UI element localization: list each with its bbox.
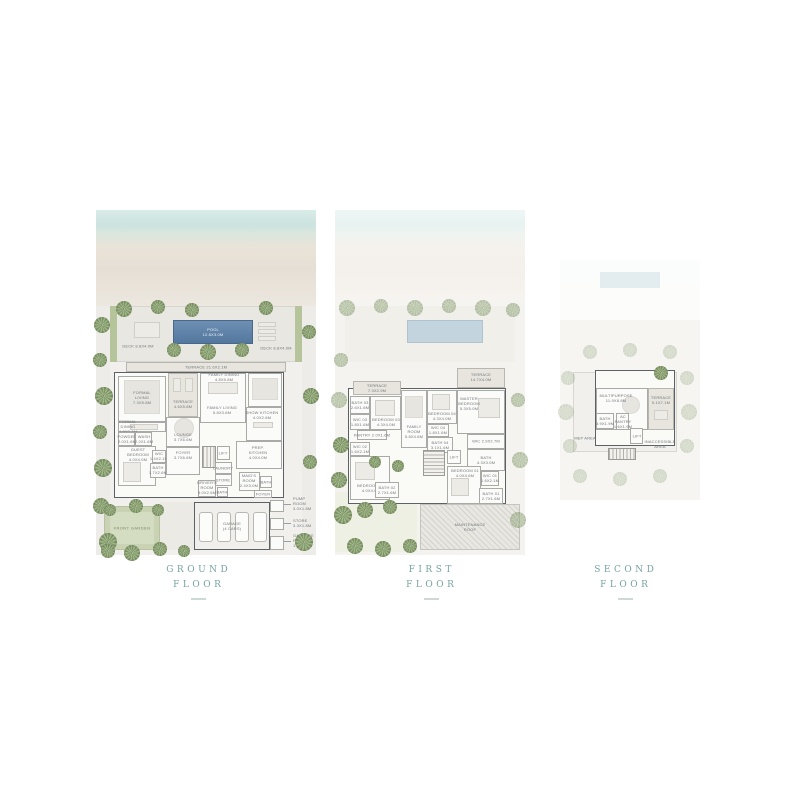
palm-tree-icon — [680, 371, 694, 385]
room-label-terrace-right: TERRACE 5.1X7.1M — [651, 395, 671, 405]
palm-tree-icon — [573, 469, 587, 483]
staircase — [608, 448, 636, 460]
room-label-maids: MAID'S ROOM 2.4X3.0M — [240, 473, 258, 489]
palm-tree-icon — [129, 499, 143, 513]
room-label-wic-master: WIC 2.9X2.7M — [472, 438, 500, 443]
room-label-terrace-master: TERRACE 14.7X4.0M — [471, 372, 492, 382]
palm-tree-icon — [331, 472, 347, 488]
second-floor-plan: TERRACE 14.8X4.0M TERRACE 5.1X7.1M MULTI… — [560, 260, 700, 500]
bed-icon — [451, 478, 469, 496]
palm-tree-icon — [374, 299, 388, 313]
room-label-bedroom-01: BEDROOM 01 4.0X4.6M — [451, 468, 479, 478]
palm-tree-icon — [151, 300, 165, 314]
room-label-deck-left: DECK 8.8X4.0M — [122, 343, 153, 348]
palm-tree-icon — [295, 533, 313, 551]
fade-overlay — [335, 210, 525, 306]
palm-tree-icon — [680, 439, 694, 453]
room-label-powder: POWDER 2.0X1.6M — [118, 434, 137, 444]
second-floor-title: SECOND FLOOR — [569, 563, 679, 600]
title-line: SECOND — [573, 563, 680, 578]
room-store-ext — [270, 518, 284, 530]
palm-tree-icon — [357, 502, 373, 518]
room-label-store: STORE — [216, 477, 230, 482]
palm-tree-icon — [185, 303, 199, 317]
palm-tree-icon — [331, 392, 347, 408]
rug — [252, 378, 278, 400]
palm-tree-icon — [442, 299, 456, 313]
room-label-bedroom-04: BEDROOM 04 4.3X4.0M — [428, 411, 456, 421]
room-label-family-dining: FAMILY DINING 4.8X5.8M — [209, 372, 240, 382]
room-label-wic-01: WIC 01 1.6X2.1M — [481, 473, 499, 483]
palm-tree-icon — [510, 512, 526, 528]
palm-tree-icon — [506, 303, 520, 317]
palm-tree-icon — [613, 472, 627, 486]
palm-tree-icon — [101, 544, 115, 558]
title-line: FIRST — [379, 563, 486, 578]
palm-tree-icon — [383, 500, 397, 514]
room-label-deck-right: DECK 8.8X4.0M — [260, 345, 291, 350]
room-label-entry: FOYER — [256, 491, 271, 496]
palm-tree-icon — [94, 317, 110, 333]
leader-line — [284, 523, 291, 524]
room-label-multipurpose: MULTIPURPOSE 11.9X8.8M — [599, 393, 632, 403]
beach-photo-faded — [335, 210, 525, 306]
room-label-bath-master: BATH 4.3X3.0M — [477, 455, 495, 465]
room-label-lift-second: LIFT — [633, 433, 642, 438]
callout-pump-room: PUMP ROOM 3.0X1.8M — [293, 496, 316, 512]
room-label-inaccessible: INACCESSIBLE AREA — [645, 439, 676, 449]
bed-icon — [375, 400, 395, 416]
beach-photo-pale — [560, 260, 700, 320]
planter — [173, 378, 181, 392]
palm-tree-icon — [333, 437, 349, 453]
room-label-drivers: DRIVER'S ROOM 3.0X2.6M — [197, 480, 217, 496]
room-label-terrace-inner: TERRACE 4.6X5.8M — [173, 399, 193, 409]
room-label-mep-area: MEP AREA — [574, 435, 596, 440]
palm-tree-icon — [653, 469, 667, 483]
palm-tree-icon — [116, 301, 132, 317]
room-label-bath-driver: BATH — [217, 489, 228, 494]
room-label-bath-03: BATH 03 2.6X1.6M — [351, 400, 369, 410]
palm-tree-icon — [475, 300, 491, 316]
sun-lounger — [258, 322, 276, 327]
palm-tree-icon — [152, 504, 164, 516]
palm-tree-icon — [681, 404, 697, 420]
swimming-pool-faded — [407, 320, 483, 343]
room-label-terrace-main: TERRACE 21.6X2.1M — [185, 364, 227, 369]
room-label-show-kitchen: SHOW KITCHEN 4.0X2.6M — [246, 410, 279, 420]
title-line: GROUND — [146, 563, 253, 578]
sun-lounger — [258, 336, 276, 341]
palm-tree-icon — [407, 300, 423, 316]
pool-pale — [600, 272, 660, 288]
palm-tree-icon — [104, 504, 116, 516]
palm-tree-icon — [369, 456, 381, 468]
room-label-formal-living: FORMAL LIVING 7.3X5.8M — [133, 390, 151, 406]
palm-tree-icon — [558, 404, 574, 420]
palm-tree-icon — [583, 345, 597, 359]
room-label-maintenance-roof: MAINTENANCE ROOF — [455, 522, 486, 532]
palm-tree-icon — [561, 371, 575, 385]
room-label-lift: LIFT — [219, 450, 228, 455]
palm-tree-icon — [302, 325, 316, 339]
room-label-family-room: FAMILY ROOM 5.8X4.6M — [405, 424, 423, 440]
room-label-wic-04: WIC 04 1.8X1.6M — [429, 425, 447, 435]
palm-tree-icon — [200, 344, 216, 360]
ground-floor-title: GROUND FLOOR — [142, 563, 252, 600]
bed-icon — [478, 398, 500, 418]
fade-overlay — [560, 260, 700, 320]
room-label-master-bedroom: MASTER BEDROOM 5.3X5.0M — [458, 396, 480, 412]
bed-icon — [432, 394, 450, 410]
car-icon — [199, 512, 213, 542]
palm-tree-icon — [153, 542, 167, 556]
title-underline — [424, 598, 439, 600]
kitchen-island — [253, 422, 273, 428]
palm-tree-icon — [334, 506, 352, 524]
room-label-front-garden: FRONT GARDEN — [114, 525, 151, 530]
hedge-right — [295, 306, 302, 362]
palm-tree-icon — [124, 545, 140, 561]
room-label-pantry: PANTRY 2.0X1.6M — [354, 432, 390, 437]
room-label-laundry: LAUNDRY — [213, 465, 233, 470]
title-line: FLOOR — [146, 578, 253, 593]
palm-tree-icon — [303, 388, 319, 404]
room-label-bath-01: BATH 01 2.7X1.6M — [482, 491, 500, 501]
room-label-wash: WASH 2.2X1.6M — [135, 434, 153, 444]
palm-tree-icon — [623, 343, 637, 357]
leader-line — [284, 541, 291, 542]
leader-line — [284, 504, 291, 505]
sun-lounger — [258, 329, 276, 334]
room-pump — [270, 500, 284, 512]
rug — [405, 396, 423, 418]
room-label-pool: POOL 12.8X3.0M — [203, 327, 224, 337]
driveway — [160, 502, 194, 550]
palm-tree-icon — [663, 345, 677, 359]
first-floor-plan: TERRACE 14.7X4.0M TERRACE 7.3X2.9M BATH … — [335, 210, 525, 555]
room-label-lounge: LOUNGE 3.7X6.6M — [174, 432, 192, 442]
hedge-left — [110, 306, 117, 362]
palm-tree-icon — [375, 541, 391, 557]
title-line: FLOOR — [573, 578, 680, 593]
palm-tree-icon — [511, 393, 525, 407]
room-label-bath: BATH 1.7X2.6M — [149, 465, 167, 475]
title-underline — [618, 598, 633, 600]
palm-tree-icon — [303, 455, 317, 469]
room-label-bath-04: BATH 04 3.1X1.6M — [431, 440, 449, 450]
palm-tree-icon — [178, 545, 190, 557]
title-underline — [191, 598, 206, 600]
palm-tree-icon — [259, 301, 273, 315]
room-label-bedroom-03: BEDROOM 03 4.3X4.0M — [372, 417, 400, 427]
outdoor-dining-table — [134, 322, 160, 338]
palm-tree-icon — [347, 538, 363, 554]
palm-tree-icon — [654, 366, 668, 380]
palm-tree-icon — [94, 459, 112, 477]
title-line: FLOOR — [379, 578, 486, 593]
room-label-lift-first: LIFT — [450, 454, 459, 459]
room-label-wic-03: WIC 03 1.8X1.6M — [351, 417, 369, 427]
room-label-terrace-left: TERRACE 7.3X2.9M — [367, 383, 387, 393]
palm-tree-icon — [512, 452, 528, 468]
palm-tree-icon — [93, 425, 107, 439]
palm-tree-icon — [95, 387, 113, 405]
room-label-family-living: FAMILY LIVING 5.8X3.6M — [207, 405, 237, 415]
first-floor-title: FIRST FLOOR — [375, 563, 485, 600]
room-label-bath-second: BATH 3.9X1.9M — [596, 416, 614, 426]
ground-floor-plan: POOL 12.8X3.0M DECK 8.8X4.0M DECK 8.8X4.… — [96, 210, 316, 555]
palm-tree-icon — [334, 353, 348, 367]
palm-tree-icon — [339, 300, 355, 316]
bed-icon — [123, 462, 141, 482]
room-label-bath-maid: BATH — [261, 479, 272, 484]
beach-photo — [96, 210, 316, 306]
palm-tree-icon — [392, 460, 404, 472]
staircase — [423, 450, 445, 476]
callout-store: STORE 3.3X1.8M — [293, 518, 311, 528]
room-label-garage: GARAGE (4 CARS) — [223, 521, 241, 531]
room-label-guest-bedroom: GUEST BEDROOM 4.0X4.0M — [127, 447, 149, 463]
outdoor-table — [654, 410, 668, 420]
palm-tree-icon — [93, 353, 107, 367]
car-icon — [253, 512, 267, 542]
dining-table — [208, 382, 238, 394]
palm-tree-icon — [167, 343, 181, 357]
room-label-prep-kitchen: PREP. KITCHEN 4.0X4.0M — [249, 445, 268, 461]
room-label-wic-02: WIC 02 1.6X2.1M — [351, 444, 369, 454]
palm-tree-icon — [235, 343, 249, 357]
planter — [185, 378, 193, 392]
room-label-bath-02: BATH 02 2.7X1.6M — [378, 485, 396, 495]
room-garbage — [270, 536, 284, 550]
palm-tree-icon — [563, 439, 577, 453]
room-label-foyer: FOYER 3.7X6.6M — [174, 450, 192, 460]
palm-tree-icon — [403, 539, 417, 553]
